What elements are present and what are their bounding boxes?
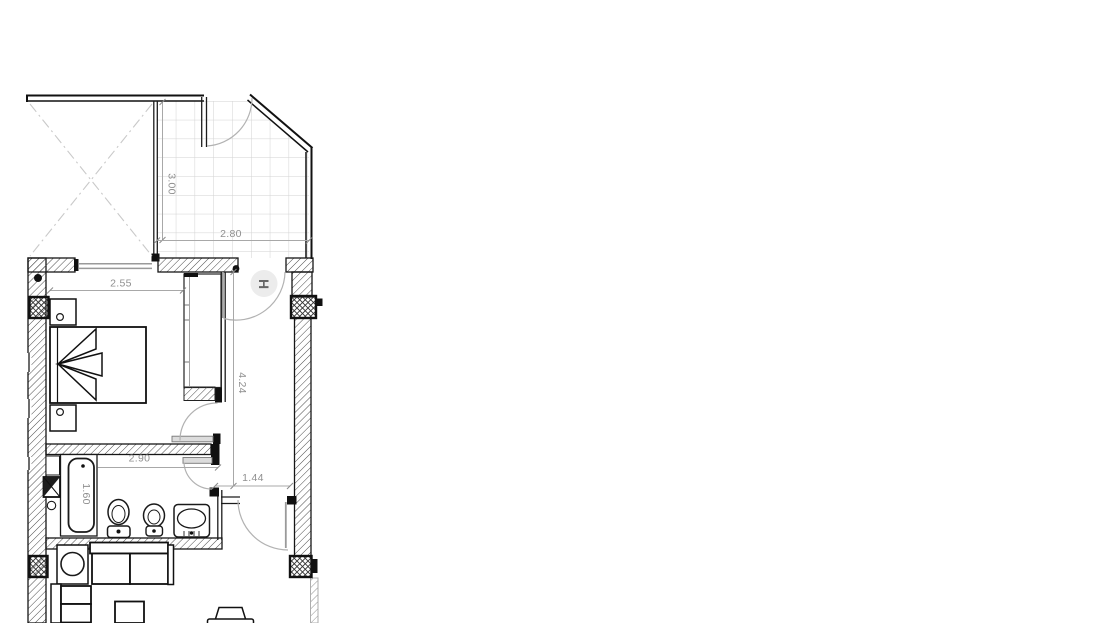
duct-shaft-symbol (44, 477, 61, 497)
svg-text:2.55: 2.55 (110, 278, 132, 290)
side-table-symbol (57, 545, 88, 584)
column-symbol (30, 556, 48, 577)
bedroom-door (172, 403, 218, 442)
floor-plan-page: H (0, 0, 1110, 623)
column-symbol (30, 297, 49, 318)
wardrobe-symbol (184, 273, 221, 401)
living-room-area (51, 543, 254, 623)
door-hinge-dot (233, 265, 240, 272)
dim-bedroom-width: 2.55 (47, 278, 186, 294)
dim-hallway-length: 4.24 (231, 269, 249, 489)
svg-text:1.60: 1.60 (80, 483, 92, 505)
svg-text:1.44: 1.44 (242, 472, 264, 484)
column-symbol (290, 556, 312, 577)
hall-label: H (256, 279, 272, 289)
toilet-symbol (108, 500, 131, 538)
entrance-door-swing-arc (238, 500, 288, 550)
svg-text:3.00: 3.00 (166, 173, 178, 195)
drain-symbol (47, 501, 55, 509)
wall-marker-dot (34, 274, 42, 282)
vestibule-stub-wall (221, 497, 240, 504)
tv-symbol (208, 608, 254, 623)
bedroom-top-wall-right (158, 258, 238, 272)
bathroom-door-swing-arc (184, 463, 212, 489)
right-exterior-wall (295, 318, 312, 556)
bathroom-area (44, 455, 213, 538)
nightstand-symbol (50, 405, 76, 431)
svg-text:4.24: 4.24 (236, 372, 248, 394)
bath-cabinet-symbol (46, 456, 60, 475)
bedroom-door-swing-arc (180, 403, 218, 441)
bidet-symbol (144, 504, 165, 536)
bathroom-door (183, 458, 212, 490)
bedroom-area (50, 273, 221, 442)
column-symbol (291, 296, 316, 318)
bed-symbol (50, 327, 146, 403)
patio-void (30, 104, 152, 256)
right-exterior-wall-lower (311, 578, 319, 623)
washbasin-symbol (174, 505, 210, 538)
svg-text:2.80: 2.80 (220, 228, 242, 240)
coffee-table-symbol (115, 602, 144, 623)
bedroom-window (79, 264, 152, 269)
svg-text:2.90: 2.90 (129, 453, 151, 465)
bedroom-top-wall-left (28, 258, 75, 272)
dim-hallway-width: 1.44 (212, 472, 293, 489)
dim-bathtub-length: 1.60 (80, 483, 92, 505)
floor-plan-drawing: H (0, 0, 1110, 623)
nightstand-symbol (50, 299, 76, 325)
entrance-door (238, 500, 288, 550)
hallway-area: H (223, 270, 288, 550)
